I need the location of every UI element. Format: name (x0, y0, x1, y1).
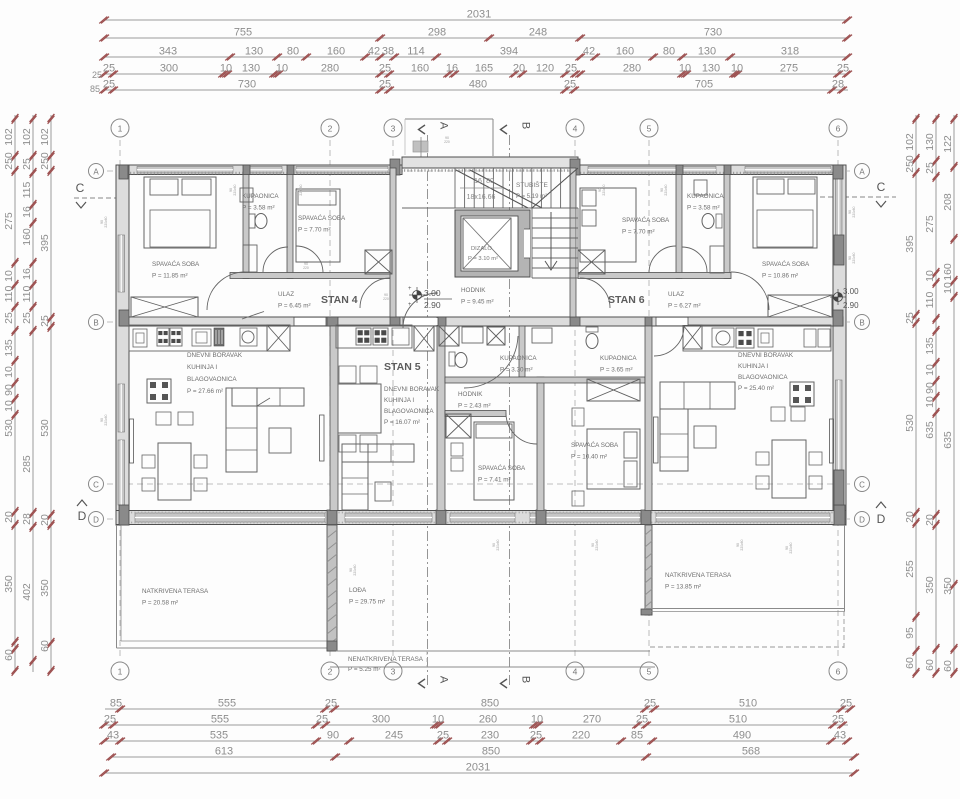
svg-text:KUPAONICA: KUPAONICA (687, 193, 724, 200)
svg-text:25: 25 (3, 312, 15, 324)
svg-text:395: 395 (904, 235, 916, 253)
svg-text:P = 5.19 m²: P = 5.19 m² (516, 194, 547, 200)
svg-text:38: 38 (382, 46, 394, 58)
svg-text:25: 25 (92, 70, 102, 80)
svg-text:P = 25.40 m²: P = 25.40 m² (738, 385, 774, 392)
svg-text:300: 300 (160, 63, 178, 75)
svg-text:HODNIK: HODNIK (458, 391, 483, 398)
svg-text:220x60: 220x60 (353, 564, 357, 575)
svg-text:6: 6 (836, 667, 841, 677)
svg-text:D: D (859, 516, 865, 525)
svg-text:95: 95 (904, 627, 916, 639)
svg-text:530: 530 (39, 419, 51, 437)
svg-text:160: 160 (21, 228, 33, 246)
svg-text:275: 275 (3, 212, 15, 230)
svg-text:350: 350 (942, 577, 954, 595)
svg-text:4: 4 (573, 124, 578, 134)
svg-text:90: 90 (3, 384, 15, 396)
svg-text:25: 25 (379, 63, 391, 75)
svg-text:KUHINJA I: KUHINJA I (738, 363, 768, 370)
svg-text:P = 20.58 m²: P = 20.58 m² (142, 600, 178, 607)
svg-text:P = 10.40 m²: P = 10.40 m² (571, 454, 607, 461)
svg-text:280: 280 (321, 63, 339, 75)
svg-text:20: 20 (513, 63, 525, 75)
svg-text:530: 530 (904, 414, 916, 432)
svg-text:43: 43 (107, 730, 119, 742)
svg-text:120: 120 (536, 63, 554, 75)
svg-text:394: 394 (500, 46, 518, 58)
svg-text:P = 3.30 m²: P = 3.30 m² (500, 367, 533, 374)
svg-text:20: 20 (3, 511, 15, 523)
svg-text:285: 285 (21, 455, 33, 473)
svg-text:42: 42 (368, 46, 380, 58)
svg-text:530: 530 (3, 419, 15, 437)
svg-text:NENATKRIVENA TERASA: NENATKRIVENA TERASA (348, 656, 424, 663)
svg-text:350: 350 (39, 579, 51, 597)
svg-text:130: 130 (242, 63, 260, 75)
svg-text:110: 110 (3, 285, 15, 302)
svg-text:850: 850 (481, 698, 499, 710)
svg-text:P = 3.10 m²: P = 3.10 m² (468, 256, 498, 262)
svg-text:DNEVNI BORAVAK: DNEVNI BORAVAK (384, 386, 440, 393)
svg-text:220x60: 220x60 (104, 216, 108, 227)
svg-text:SPAVAĆA SOBA: SPAVAĆA SOBA (478, 463, 526, 472)
svg-text:16: 16 (474, 178, 482, 185)
svg-text:STUBIŠTE: STUBIŠTE (516, 180, 548, 189)
svg-text:25: 25 (39, 315, 51, 327)
svg-text:2031: 2031 (466, 762, 490, 774)
svg-text:2031: 2031 (467, 9, 491, 21)
svg-text:16: 16 (21, 206, 33, 218)
svg-text:KUPAONICA: KUPAONICA (500, 355, 537, 362)
svg-text:P = 3.58 m²: P = 3.58 m² (242, 205, 275, 212)
svg-text:6: 6 (836, 124, 841, 134)
svg-text:P = 7.70 m²: P = 7.70 m² (622, 229, 655, 236)
svg-text:25: 25 (840, 698, 852, 710)
svg-text:555: 555 (218, 698, 236, 710)
svg-text:16: 16 (21, 268, 33, 280)
svg-text:85: 85 (90, 84, 100, 94)
svg-text:60: 60 (904, 657, 916, 669)
svg-text:135: 135 (924, 337, 936, 355)
svg-text:298: 298 (428, 27, 446, 39)
svg-text:220x60: 220x60 (664, 184, 668, 195)
svg-text:25: 25 (832, 714, 844, 726)
svg-text:850: 850 (482, 746, 500, 758)
svg-text:1: 1 (118, 124, 123, 134)
svg-text:220x60: 220x60 (104, 414, 108, 425)
svg-text:BLAGOVAONICA: BLAGOVAONICA (187, 376, 237, 383)
svg-text:510: 510 (729, 714, 747, 726)
svg-text:220x60: 220x60 (496, 539, 500, 550)
svg-text:A: A (438, 122, 450, 130)
svg-text:20: 20 (39, 514, 51, 526)
svg-text:350: 350 (3, 575, 15, 593)
svg-text:635: 635 (942, 431, 954, 449)
svg-text:A: A (859, 168, 865, 177)
svg-text:10: 10 (924, 396, 936, 408)
svg-text:250: 250 (39, 152, 51, 170)
svg-text:490: 490 (733, 730, 751, 742)
svg-text:115: 115 (21, 181, 33, 198)
svg-text:NATKRIVENA TERASA: NATKRIVENA TERASA (665, 572, 732, 579)
svg-text:160: 160 (327, 46, 345, 58)
svg-text:395: 395 (39, 234, 51, 252)
svg-text:+: + (408, 302, 412, 308)
svg-text:248: 248 (529, 27, 547, 39)
svg-text:220x60: 220x60 (852, 206, 856, 217)
svg-text:350: 350 (924, 576, 936, 594)
svg-text:D: D (93, 516, 99, 525)
svg-text:25: 25 (21, 158, 33, 170)
svg-text:130: 130 (245, 46, 263, 58)
svg-text:BLAGOVAONICA: BLAGOVAONICA (384, 408, 434, 415)
svg-text:D: D (877, 512, 886, 526)
svg-text:DNEVNI BORAVAK: DNEVNI BORAVAK (187, 352, 243, 359)
svg-text:3: 3 (391, 124, 396, 134)
svg-text:5: 5 (647, 124, 652, 134)
svg-text:25: 25 (565, 63, 577, 75)
svg-text:25: 25 (530, 730, 542, 742)
svg-text:25: 25 (437, 730, 449, 742)
svg-text:568: 568 (742, 746, 760, 758)
svg-text:25: 25 (379, 79, 391, 91)
svg-text:3.00: 3.00 (424, 288, 441, 298)
svg-text:KUHINJA I: KUHINJA I (187, 364, 217, 371)
svg-text:P = 6.45 m²: P = 6.45 m² (278, 303, 311, 310)
svg-text:B: B (859, 319, 864, 328)
svg-text:DNEVNI BORAVAK: DNEVNI BORAVAK (738, 352, 794, 359)
svg-text:275: 275 (924, 215, 936, 233)
svg-text:730: 730 (238, 79, 256, 91)
svg-text:220x60: 220x60 (602, 184, 606, 195)
svg-text:P = 3.65 m²: P = 3.65 m² (600, 367, 633, 374)
svg-text:25: 25 (104, 714, 116, 726)
svg-text:90: 90 (327, 730, 339, 742)
svg-text:635: 635 (924, 421, 936, 439)
svg-text:P = 3.58 m²: P = 3.58 m² (687, 205, 720, 212)
svg-text:220: 220 (572, 730, 590, 742)
svg-text:P = 7.41 m²: P = 7.41 m² (478, 477, 511, 484)
svg-text:555: 555 (211, 714, 229, 726)
svg-text:110: 110 (924, 291, 936, 308)
svg-text:A: A (93, 168, 99, 177)
svg-text:114: 114 (407, 46, 425, 58)
svg-text:160: 160 (942, 263, 954, 281)
svg-text:613: 613 (215, 746, 233, 758)
svg-text:260: 260 (479, 714, 497, 726)
svg-text:+: + (408, 286, 412, 292)
svg-text:BLAGOVAONICA: BLAGOVAONICA (738, 374, 788, 381)
svg-text:300: 300 (372, 714, 390, 726)
svg-text:2.90: 2.90 (424, 300, 441, 310)
svg-text:3.00: 3.00 (843, 287, 859, 296)
svg-text:42: 42 (583, 46, 595, 58)
svg-text:220x60: 220x60 (740, 539, 744, 550)
svg-text:102: 102 (21, 128, 33, 146)
svg-text:10: 10 (3, 366, 15, 378)
svg-text:25: 25 (103, 63, 115, 75)
svg-text:1: 1 (118, 667, 123, 677)
svg-text:P = 6.27 m²: P = 6.27 m² (668, 303, 701, 310)
svg-text:KUPAONICA: KUPAONICA (600, 355, 637, 362)
svg-text:60: 60 (924, 659, 936, 671)
svg-text:NATKRIVENA TERASA: NATKRIVENA TERASA (142, 588, 209, 595)
svg-text:C: C (859, 481, 865, 490)
svg-text:20: 20 (904, 511, 916, 523)
svg-text:160: 160 (616, 46, 634, 58)
svg-text:60: 60 (39, 640, 51, 652)
svg-text:10: 10 (679, 63, 691, 75)
svg-text:10: 10 (942, 282, 954, 294)
svg-text:20: 20 (924, 514, 936, 526)
svg-text:SPAVAĆA SOBA: SPAVAĆA SOBA (152, 259, 200, 268)
svg-text:85: 85 (631, 730, 643, 742)
svg-text:HODNIK: HODNIK (461, 287, 486, 294)
svg-text:220x60: 220x60 (852, 252, 856, 263)
svg-text:255: 255 (904, 560, 916, 578)
svg-text:C: C (93, 481, 99, 490)
svg-text:25: 25 (837, 63, 849, 75)
svg-text:402: 402 (21, 583, 33, 601)
svg-text:2: 2 (328, 667, 333, 677)
svg-text:25: 25 (924, 162, 936, 174)
svg-text:P = 9.45 m²: P = 9.45 m² (461, 299, 494, 306)
svg-text:130: 130 (698, 46, 716, 58)
svg-text:270: 270 (583, 714, 601, 726)
svg-text:220x60: 220x60 (789, 542, 793, 553)
svg-text:135: 135 (3, 339, 15, 357)
svg-text:P = 16.07 m²: P = 16.07 m² (384, 419, 420, 426)
svg-text:P = 2.43 m²: P = 2.43 m² (458, 403, 491, 410)
svg-text:STAN 5: STAN 5 (384, 361, 421, 373)
svg-text:510: 510 (739, 698, 757, 710)
svg-text:220: 220 (303, 266, 309, 270)
svg-text:P = 11.85 m²: P = 11.85 m² (152, 273, 188, 280)
svg-text:80: 80 (486, 178, 494, 185)
svg-text:220x60: 220x60 (233, 184, 237, 195)
svg-text:60: 60 (942, 660, 954, 672)
svg-text:318: 318 (781, 46, 799, 58)
svg-text:10: 10 (924, 364, 936, 376)
svg-text:B: B (520, 676, 532, 683)
svg-text:25: 25 (904, 312, 916, 324)
svg-text:130: 130 (924, 133, 936, 151)
svg-text:16: 16 (446, 63, 458, 75)
svg-text:60: 60 (3, 649, 15, 661)
svg-text:2.90: 2.90 (843, 301, 859, 310)
svg-text:10: 10 (924, 270, 936, 282)
svg-text:ULAZ: ULAZ (278, 291, 294, 298)
svg-text:P = 27.66 m²: P = 27.66 m² (187, 388, 223, 395)
svg-text:SPAVAĆA SOBA: SPAVAĆA SOBA (298, 213, 346, 222)
svg-text:LOĐA: LOĐA (349, 587, 367, 594)
svg-text:25: 25 (564, 79, 576, 91)
svg-text:10: 10 (432, 714, 444, 726)
svg-text:5: 5 (647, 667, 652, 677)
svg-text:10: 10 (3, 400, 15, 412)
svg-text:730: 730 (704, 27, 722, 39)
svg-text:85: 85 (110, 698, 122, 710)
svg-text:280: 280 (623, 63, 641, 75)
svg-text:755: 755 (234, 27, 252, 39)
svg-text:80: 80 (287, 46, 299, 58)
svg-text:3: 3 (391, 667, 396, 677)
svg-text:25: 25 (644, 698, 656, 710)
svg-text:10: 10 (276, 63, 288, 75)
svg-text:25: 25 (325, 698, 337, 710)
svg-text:220: 220 (444, 140, 450, 144)
svg-text:B: B (520, 122, 532, 129)
svg-text:80: 80 (663, 46, 675, 58)
svg-text:160: 160 (411, 63, 429, 75)
svg-text:110: 110 (21, 285, 33, 302)
svg-text:10: 10 (531, 714, 543, 726)
svg-text:D: D (78, 509, 87, 523)
svg-text:102: 102 (904, 133, 916, 151)
svg-text:480: 480 (469, 79, 487, 91)
svg-text:4: 4 (573, 667, 578, 677)
svg-text:535: 535 (210, 730, 228, 742)
svg-text:28: 28 (832, 79, 844, 91)
svg-text:230: 230 (481, 730, 499, 742)
svg-text:10: 10 (731, 63, 743, 75)
svg-text:10: 10 (3, 270, 15, 282)
svg-text:A: A (438, 676, 450, 684)
svg-text:130: 130 (702, 63, 720, 75)
svg-text:165: 165 (475, 63, 493, 75)
svg-text:208: 208 (942, 193, 954, 211)
svg-text:DIZALO: DIZALO (471, 246, 492, 252)
svg-text:220x60: 220x60 (595, 539, 599, 550)
svg-text:220: 220 (383, 297, 389, 301)
svg-text:25: 25 (636, 714, 648, 726)
svg-text:25: 25 (103, 79, 115, 91)
svg-text:SPAVAĆA SOBA: SPAVAĆA SOBA (762, 259, 810, 268)
svg-text:C: C (877, 180, 886, 194)
svg-text:250: 250 (3, 152, 15, 170)
svg-text:2: 2 (328, 124, 333, 134)
svg-text:P = 29.75 m²: P = 29.75 m² (349, 599, 385, 606)
svg-text:343: 343 (159, 46, 177, 58)
svg-text:STAN 4: STAN 4 (321, 294, 358, 306)
svg-text:P = 10.86 m²: P = 10.86 m² (762, 273, 798, 280)
svg-text:B: B (93, 319, 98, 328)
svg-text:P = 7.70 m²: P = 7.70 m² (298, 227, 331, 234)
svg-text:25: 25 (316, 714, 328, 726)
svg-text:43: 43 (834, 730, 846, 742)
svg-text:90: 90 (924, 382, 936, 394)
svg-text:245: 245 (385, 730, 403, 742)
svg-text:25: 25 (21, 312, 33, 324)
svg-text:ULAZ: ULAZ (668, 291, 684, 298)
svg-text:275: 275 (780, 63, 798, 75)
svg-text:KUPAONICA: KUPAONICA (242, 193, 279, 200)
svg-text:28: 28 (21, 513, 33, 525)
svg-text:18x16.66: 18x16.66 (467, 194, 496, 201)
svg-text:705: 705 (695, 79, 713, 91)
svg-text:102: 102 (3, 128, 15, 146)
svg-text:SPAVAĆA SOBA: SPAVAĆA SOBA (571, 440, 619, 449)
svg-text:122: 122 (942, 135, 954, 153)
svg-text:STAN 6: STAN 6 (608, 294, 645, 306)
svg-text:P = 13.85 m²: P = 13.85 m² (665, 584, 701, 591)
svg-text:C: C (76, 181, 85, 195)
svg-text:SPAVAĆA SOBA: SPAVAĆA SOBA (622, 215, 670, 224)
svg-text:220x60: 220x60 (299, 184, 303, 195)
svg-text:102: 102 (39, 128, 51, 146)
svg-text:250: 250 (904, 155, 916, 173)
svg-text:KUHINJA I: KUHINJA I (384, 397, 414, 404)
svg-text:10: 10 (220, 63, 232, 75)
